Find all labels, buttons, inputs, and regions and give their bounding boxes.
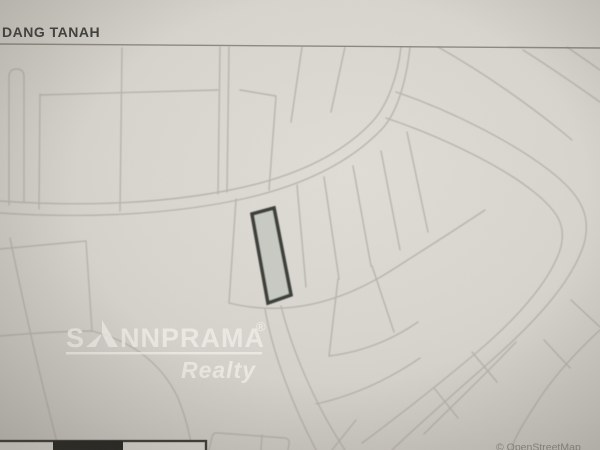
- vignette-overlay: [0, 0, 600, 450]
- land-plot-photo: DANG TANAH © OpenStreetMap S NNPRAMA ® R…: [0, 0, 600, 450]
- plot-map: DANG TANAH © OpenStreetMap S NNPRAMA ® R…: [0, 0, 600, 450]
